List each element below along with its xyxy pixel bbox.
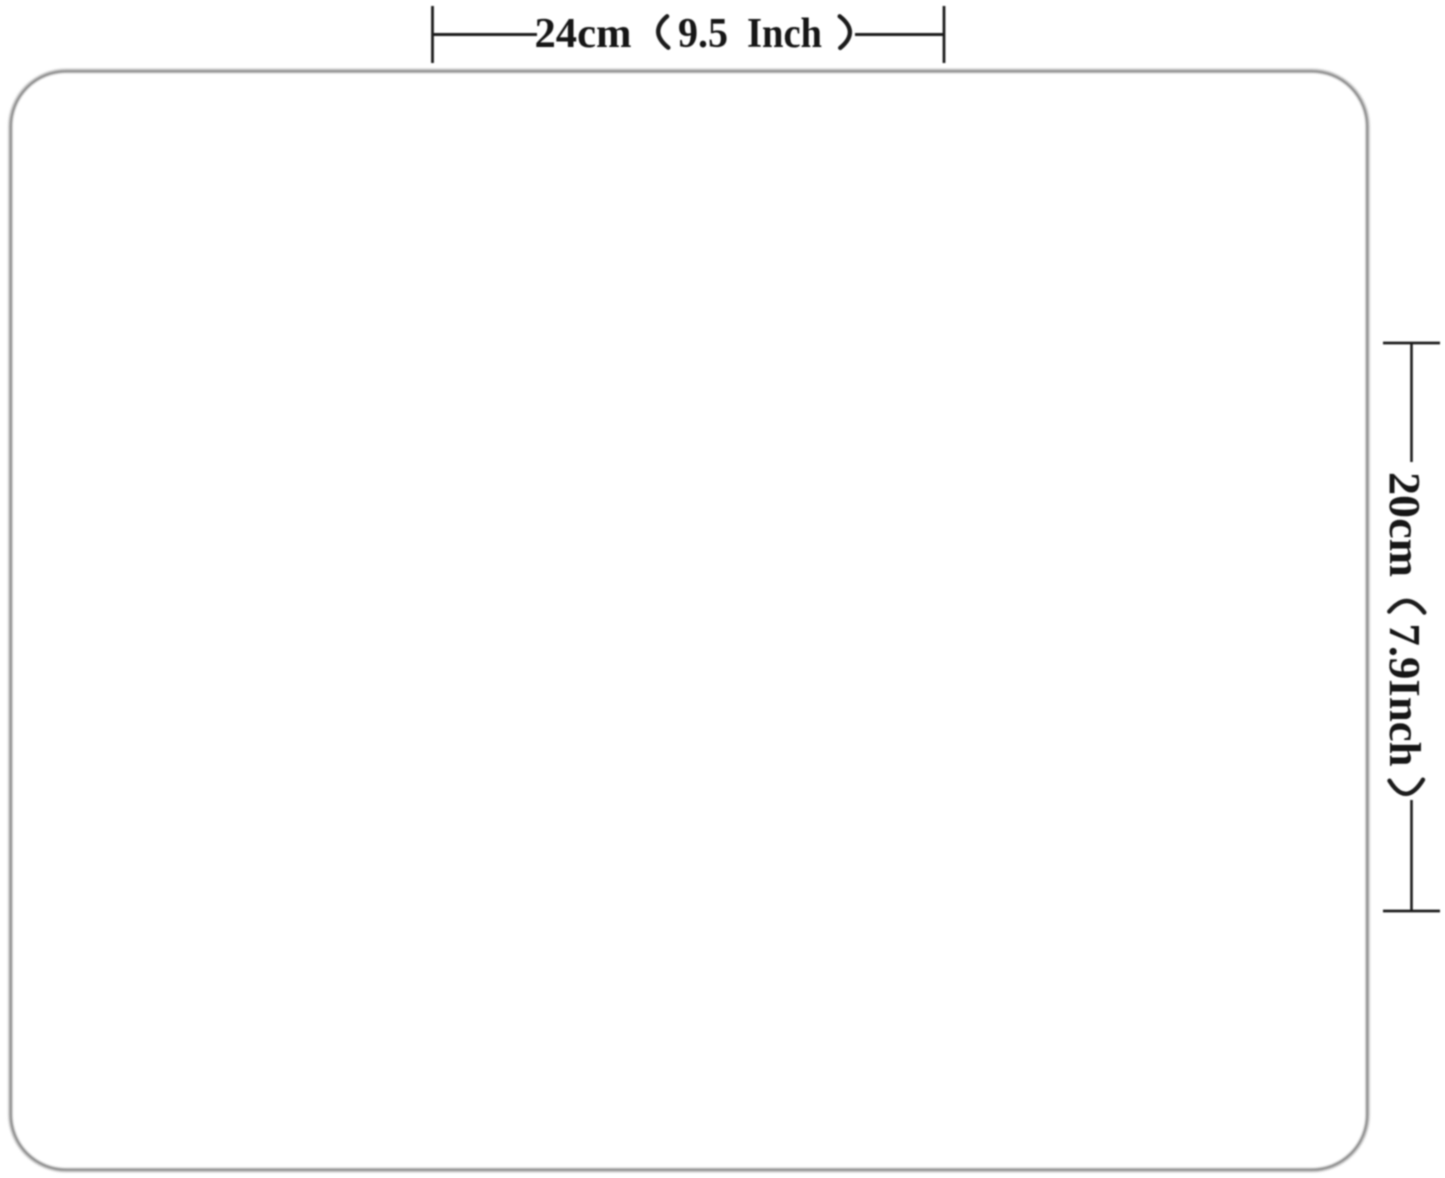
svg-text:24cm: 24cm bbox=[535, 11, 632, 57]
svg-text:Inch: Inch bbox=[747, 11, 822, 57]
svg-text:9.5: 9.5 bbox=[678, 11, 728, 57]
svg-text:20cm: 20cm bbox=[1380, 472, 1430, 577]
svg-text:7.9Inch: 7.9Inch bbox=[1380, 624, 1430, 767]
